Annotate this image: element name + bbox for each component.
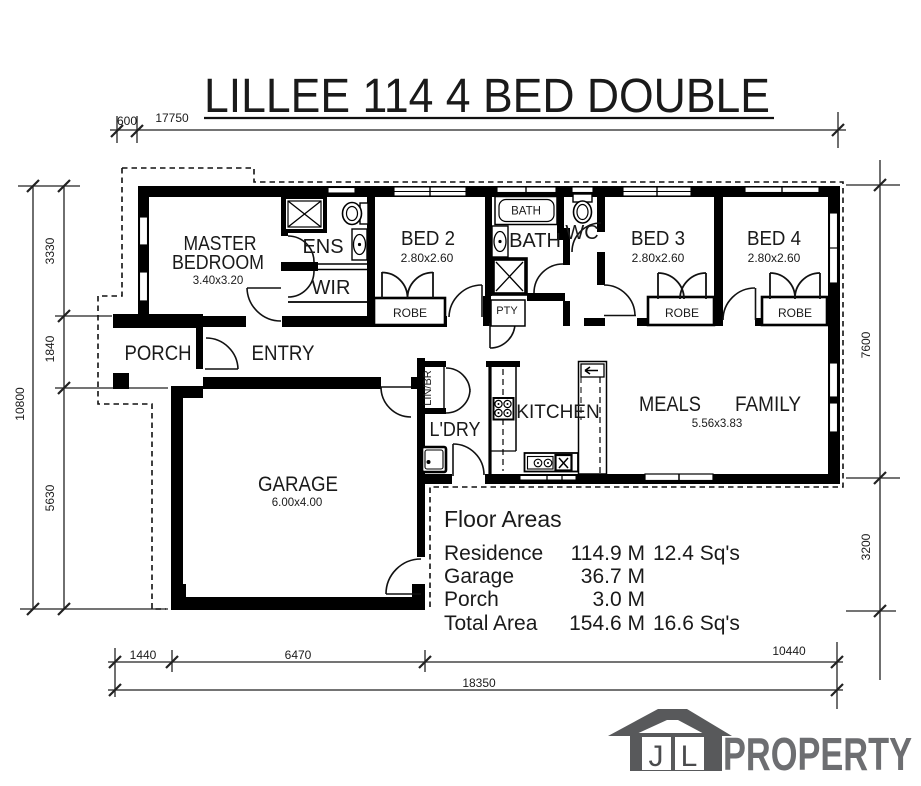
svg-text:7600: 7600 xyxy=(859,331,873,358)
svg-text:17750: 17750 xyxy=(155,111,189,125)
svg-text:GARAGE: GARAGE xyxy=(258,473,338,496)
svg-text:KITCHEN: KITCHEN xyxy=(516,402,599,423)
svg-text:2.80x2.60: 2.80x2.60 xyxy=(401,251,454,265)
svg-text:WC: WC xyxy=(565,222,598,244)
svg-text:PROPERTY: PROPERTY xyxy=(723,728,912,780)
svg-text:3.40x3.20: 3.40x3.20 xyxy=(193,275,244,287)
svg-text:BED 2: BED 2 xyxy=(401,228,455,250)
svg-text:2.80x2.60: 2.80x2.60 xyxy=(632,251,685,265)
svg-text:ENS: ENS xyxy=(302,236,343,258)
svg-text:PORCH: PORCH xyxy=(125,342,192,365)
svg-text:Floor Areas: Floor Areas xyxy=(444,506,562,532)
svg-text:10800: 10800 xyxy=(13,387,27,421)
svg-text:6.00x4.00: 6.00x4.00 xyxy=(272,497,323,509)
svg-text:LIN/BR: LIN/BR xyxy=(422,370,434,406)
svg-text:154.6 M: 154.6 M xyxy=(569,612,645,635)
svg-text:BATH: BATH xyxy=(509,230,561,252)
svg-text:J: J xyxy=(649,740,664,773)
svg-text:ROBE: ROBE xyxy=(393,306,427,320)
svg-text:BATH: BATH xyxy=(511,206,541,218)
svg-text:Porch: Porch xyxy=(444,588,499,611)
svg-text:1840: 1840 xyxy=(43,335,57,362)
svg-text:36.7 M: 36.7 M xyxy=(581,565,645,588)
svg-text:Total Area: Total Area xyxy=(444,612,538,635)
svg-text:PTY: PTY xyxy=(496,305,518,317)
svg-text:600: 600 xyxy=(117,114,137,128)
svg-text:BED 3: BED 3 xyxy=(631,228,685,250)
svg-text:L'DRY: L'DRY xyxy=(430,419,481,441)
svg-text:3200: 3200 xyxy=(859,533,873,560)
svg-text:114.9 M: 114.9 M xyxy=(571,542,645,565)
svg-text:ENTRY: ENTRY xyxy=(252,342,315,365)
svg-text:BED 4: BED 4 xyxy=(747,228,801,250)
svg-text:L: L xyxy=(681,740,698,773)
svg-text:LILLEE 114 4 BED DOUBLE: LILLEE 114 4 BED DOUBLE xyxy=(204,70,770,123)
svg-text:Residence: Residence xyxy=(444,542,543,565)
svg-text:FAMILY: FAMILY xyxy=(735,392,801,416)
svg-text:ROBE: ROBE xyxy=(665,306,699,320)
svg-text:BEDROOM: BEDROOM xyxy=(172,252,264,274)
svg-text:18350: 18350 xyxy=(462,676,496,690)
svg-text:5630: 5630 xyxy=(43,484,57,511)
svg-text:16.6 Sq's: 16.6 Sq's xyxy=(653,612,740,635)
svg-text:ROBE: ROBE xyxy=(778,306,812,320)
svg-text:6470: 6470 xyxy=(285,648,312,662)
svg-text:MEALS: MEALS xyxy=(639,392,701,416)
svg-text:2.80x2.60: 2.80x2.60 xyxy=(748,251,801,265)
svg-text:10440: 10440 xyxy=(772,644,806,658)
svg-text:5.56x3.83: 5.56x3.83 xyxy=(692,418,743,430)
svg-text:3.0 M: 3.0 M xyxy=(592,588,645,611)
svg-text:WIR: WIR xyxy=(312,277,351,299)
svg-text:12.4 Sq's: 12.4 Sq's xyxy=(653,542,740,565)
svg-text:3330: 3330 xyxy=(43,237,57,264)
svg-text:1440: 1440 xyxy=(130,648,157,662)
svg-text:Garage: Garage xyxy=(444,565,514,588)
